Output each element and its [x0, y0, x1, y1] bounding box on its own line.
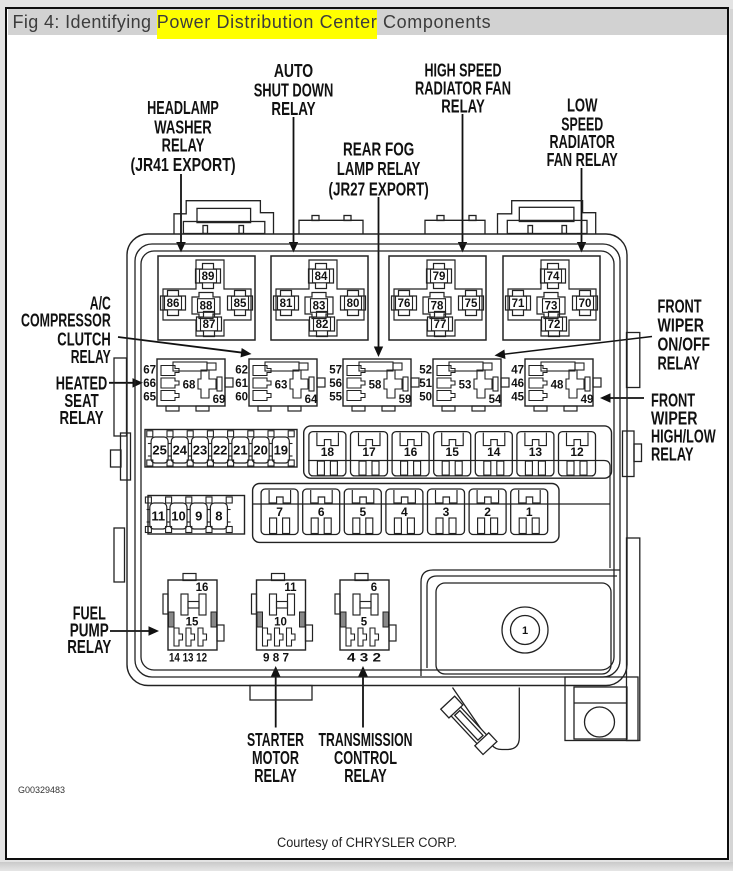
svg-text:79: 79	[433, 271, 446, 283]
svg-text:FRONT: FRONT	[658, 297, 702, 317]
svg-text:RELAY: RELAY	[71, 347, 111, 367]
svg-text:77: 77	[434, 319, 447, 331]
svg-text:18: 18	[321, 445, 335, 459]
svg-text:65: 65	[143, 392, 156, 404]
svg-text:RELAY: RELAY	[441, 97, 485, 117]
svg-text:14 13 12: 14 13 12	[169, 653, 207, 665]
svg-text:81: 81	[280, 298, 293, 310]
svg-text:TRANSMISSION: TRANSMISSION	[319, 730, 413, 750]
svg-text:LAMP RELAY: LAMP RELAY	[337, 159, 421, 179]
svg-text:63: 63	[275, 380, 288, 392]
svg-text:8: 8	[215, 509, 222, 524]
svg-text:CONTROL: CONTROL	[334, 748, 397, 768]
svg-text:(JR41 EXPORT): (JR41 EXPORT)	[130, 155, 235, 175]
svg-text:WIPER: WIPER	[651, 409, 698, 429]
svg-text:13: 13	[529, 445, 543, 459]
svg-text:WASHER: WASHER	[154, 118, 212, 138]
svg-text:16: 16	[196, 582, 209, 594]
svg-text:73: 73	[545, 301, 558, 313]
svg-text:HEADLAMP: HEADLAMP	[147, 98, 219, 118]
svg-text:87: 87	[203, 319, 216, 331]
svg-text:15: 15	[446, 445, 460, 459]
svg-text:9: 9	[195, 509, 202, 524]
svg-text:46: 46	[511, 378, 524, 390]
svg-text:(JR27 EXPORT): (JR27 EXPORT)	[329, 179, 429, 199]
svg-text:22: 22	[213, 443, 227, 458]
svg-text:Courtesy of CHRYSLER CORP.: Courtesy of CHRYSLER CORP.	[277, 835, 457, 850]
svg-text:RELAY: RELAY	[67, 637, 111, 657]
svg-text:66: 66	[143, 378, 156, 390]
svg-text:49: 49	[581, 394, 594, 406]
svg-text:55: 55	[329, 392, 342, 404]
svg-text:69: 69	[213, 394, 226, 406]
svg-text:21: 21	[233, 443, 247, 458]
svg-text:RELAY: RELAY	[271, 99, 315, 119]
svg-text:16: 16	[404, 445, 418, 459]
svg-text:10: 10	[171, 509, 185, 524]
svg-text:62: 62	[235, 365, 248, 377]
svg-text:STARTER: STARTER	[247, 730, 304, 750]
svg-text:5: 5	[361, 617, 368, 629]
svg-text:1: 1	[522, 625, 528, 637]
svg-text:14: 14	[487, 445, 501, 459]
svg-text:WIPER: WIPER	[658, 316, 705, 336]
svg-text:50: 50	[419, 392, 432, 404]
svg-text:HIGH/LOW: HIGH/LOW	[651, 427, 716, 447]
svg-text:83: 83	[313, 301, 326, 313]
svg-text:45: 45	[511, 392, 524, 404]
svg-text:19: 19	[274, 443, 288, 458]
svg-text:61: 61	[235, 378, 248, 390]
svg-text:58: 58	[369, 380, 382, 392]
svg-text:7: 7	[276, 505, 283, 519]
svg-text:54: 54	[489, 394, 502, 406]
svg-text:82: 82	[316, 319, 329, 331]
svg-text:74: 74	[547, 271, 560, 283]
svg-text:53: 53	[459, 380, 472, 392]
svg-text:88: 88	[200, 301, 213, 313]
svg-text:COMPRESSOR: COMPRESSOR	[21, 311, 111, 331]
svg-text:86: 86	[167, 298, 180, 310]
svg-text:HIGH SPEED: HIGH SPEED	[424, 61, 501, 81]
svg-text:80: 80	[347, 298, 360, 310]
svg-text:17: 17	[362, 445, 376, 459]
svg-text:51: 51	[419, 378, 432, 390]
svg-text:84: 84	[315, 271, 328, 283]
svg-text:1: 1	[526, 505, 533, 519]
svg-text:25: 25	[152, 443, 166, 458]
svg-text:48: 48	[551, 380, 564, 392]
svg-text:70: 70	[579, 298, 592, 310]
svg-text:9 8 7: 9 8 7	[263, 653, 289, 665]
svg-text:57: 57	[329, 365, 342, 377]
svg-text:76: 76	[398, 298, 411, 310]
svg-text:20: 20	[253, 443, 267, 458]
svg-text:56: 56	[329, 378, 342, 390]
svg-text:RELAY: RELAY	[162, 136, 205, 156]
svg-text:60: 60	[235, 392, 248, 404]
svg-text:3: 3	[443, 505, 450, 519]
svg-text:64: 64	[305, 394, 318, 406]
svg-text:AUTO: AUTO	[274, 61, 313, 81]
svg-text:FAN RELAY: FAN RELAY	[547, 150, 618, 170]
svg-text:47: 47	[511, 365, 524, 377]
svg-text:SHUT DOWN: SHUT DOWN	[254, 81, 334, 101]
svg-text:REAR FOG: REAR FOG	[343, 140, 414, 160]
svg-text:6: 6	[318, 505, 325, 519]
svg-text:4 3 2: 4 3 2	[347, 653, 381, 665]
svg-text:11: 11	[151, 509, 165, 524]
svg-text:RELAY: RELAY	[651, 445, 694, 465]
svg-text:78: 78	[431, 301, 444, 313]
svg-text:LOW: LOW	[567, 95, 598, 115]
svg-text:RELAY: RELAY	[344, 766, 387, 786]
svg-text:ON/OFF: ON/OFF	[658, 335, 711, 355]
svg-text:89: 89	[202, 271, 215, 283]
svg-text:RELAY: RELAY	[658, 354, 701, 374]
svg-text:68: 68	[183, 380, 196, 392]
svg-text:10: 10	[274, 617, 287, 629]
svg-text:72: 72	[548, 319, 561, 331]
svg-text:23: 23	[193, 443, 207, 458]
svg-text:67: 67	[143, 365, 156, 377]
svg-text:12: 12	[570, 445, 584, 459]
svg-text:71: 71	[512, 298, 525, 310]
svg-text:4: 4	[401, 505, 408, 519]
svg-text:FRONT: FRONT	[651, 391, 695, 411]
svg-text:59: 59	[399, 394, 412, 406]
svg-text:G00329483: G00329483	[18, 785, 65, 795]
svg-text:2: 2	[484, 505, 491, 519]
svg-text:RELAY: RELAY	[254, 766, 297, 786]
svg-text:85: 85	[234, 298, 247, 310]
svg-text:RELAY: RELAY	[60, 408, 104, 428]
svg-text:MOTOR: MOTOR	[252, 748, 299, 768]
svg-text:24: 24	[173, 443, 188, 458]
svg-text:75: 75	[465, 298, 478, 310]
svg-text:11: 11	[284, 582, 297, 594]
svg-text:5: 5	[359, 505, 366, 519]
svg-text:6: 6	[371, 582, 377, 594]
svg-text:52: 52	[419, 365, 432, 377]
svg-text:15: 15	[186, 617, 199, 629]
